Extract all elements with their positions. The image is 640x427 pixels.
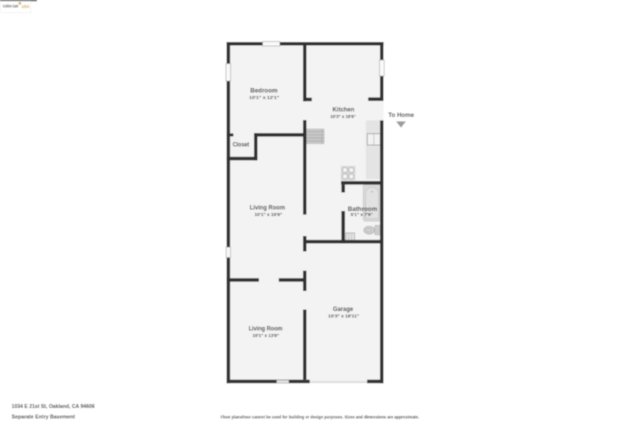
svg-text:10'1" x 13'8": 10'1" x 13'8" xyxy=(253,333,280,338)
svg-text:Floor plans/tour cannot be use: Floor plans/tour cannot be used for buil… xyxy=(221,415,420,420)
svg-text:10'1" x 12'1": 10'1" x 12'1" xyxy=(249,95,279,100)
svg-text:Living Room: Living Room xyxy=(249,325,283,332)
svg-text:10'3" x 18'6": 10'3" x 18'6" xyxy=(330,114,356,119)
svg-text:1034 E 21st St, Oakland, CA 94: 1034 E 21st St, Oakland, CA 94606 xyxy=(12,404,95,410)
svg-text:Bedroom: Bedroom xyxy=(250,88,278,95)
svg-text:Closet: Closet xyxy=(233,141,250,148)
svg-text:Garage: Garage xyxy=(333,306,354,313)
svg-text:Living Room: Living Room xyxy=(250,204,285,211)
svg-text:Separate Entry Basement: Separate Entry Basement xyxy=(12,414,76,420)
svg-text:10'3" x 18'11": 10'3" x 18'11" xyxy=(328,313,359,318)
svg-text:5'1" x 7'9": 5'1" x 7'9" xyxy=(351,212,373,217)
svg-text:To Home: To Home xyxy=(388,112,414,119)
svg-text:Golden Gate: Golden Gate xyxy=(3,4,19,9)
svg-text:10'1" x 19'6": 10'1" x 19'6" xyxy=(255,212,283,217)
svg-text:USA: USA xyxy=(22,4,30,10)
svg-text:Kitchen: Kitchen xyxy=(333,107,355,114)
